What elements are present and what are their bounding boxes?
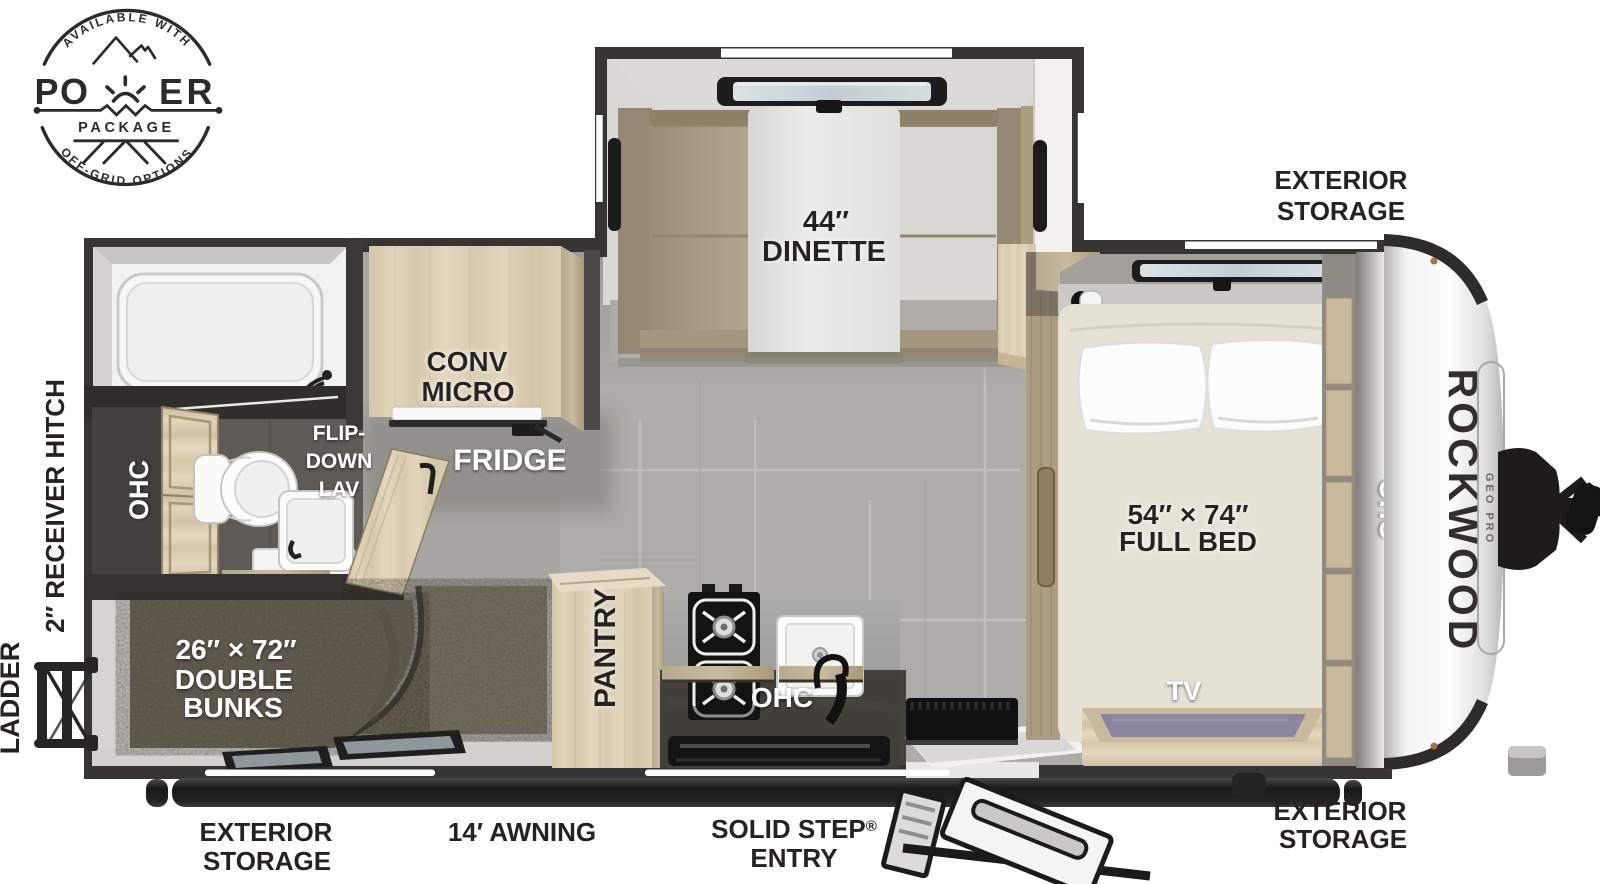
svg-text:26″ × 72″: 26″ × 72″ — [175, 634, 296, 665]
svg-text:STORAGE: STORAGE — [1277, 196, 1405, 226]
svg-text:PACKAGE: PACKAGE — [78, 120, 175, 136]
svg-text:DINETTE: DINETTE — [762, 236, 886, 268]
svg-text:FRIDGE: FRIDGE — [453, 444, 566, 477]
svg-text:STORAGE: STORAGE — [1279, 824, 1407, 854]
svg-text:DOUBLE: DOUBLE — [175, 664, 293, 695]
svg-text:EXTERIOR: EXTERIOR — [200, 817, 333, 847]
svg-text:2″ RECEIVER HITCH: 2″ RECEIVER HITCH — [40, 379, 70, 633]
svg-text:BUNKS: BUNKS — [183, 692, 283, 723]
svg-text:STORAGE: STORAGE — [203, 846, 331, 876]
svg-text:PO: PO — [35, 71, 90, 112]
svg-text:ROCKWOOD: ROCKWOOD — [1440, 369, 1486, 654]
svg-text:GEO PRO: GEO PRO — [1483, 473, 1495, 545]
svg-text:ER: ER — [159, 71, 216, 112]
svg-text:PANTRY: PANTRY — [589, 588, 622, 708]
svg-text:OHC: OHC — [751, 682, 813, 713]
svg-text:14′ AWNING: 14′ AWNING — [448, 817, 596, 847]
svg-text:OHC: OHC — [124, 460, 154, 520]
svg-text:FULL BED: FULL BED — [1119, 526, 1257, 557]
svg-text:LADDER: LADDER — [0, 642, 25, 755]
svg-text:TV: TV — [1167, 676, 1202, 706]
svg-text:EXTERIOR: EXTERIOR — [1274, 796, 1407, 826]
svg-text:FLIP-: FLIP- — [313, 422, 366, 445]
svg-text:EXTERIOR: EXTERIOR — [1275, 165, 1408, 195]
svg-text:ENTRY: ENTRY — [750, 843, 837, 873]
svg-text:MICRO: MICRO — [421, 376, 514, 407]
svg-text:DOWN: DOWN — [306, 450, 373, 473]
svg-text:LAV: LAV — [319, 478, 359, 501]
svg-text:44″: 44″ — [803, 206, 849, 238]
svg-text:SOLID STEP®: SOLID STEP® — [711, 814, 877, 844]
svg-text:CONV: CONV — [427, 346, 508, 377]
